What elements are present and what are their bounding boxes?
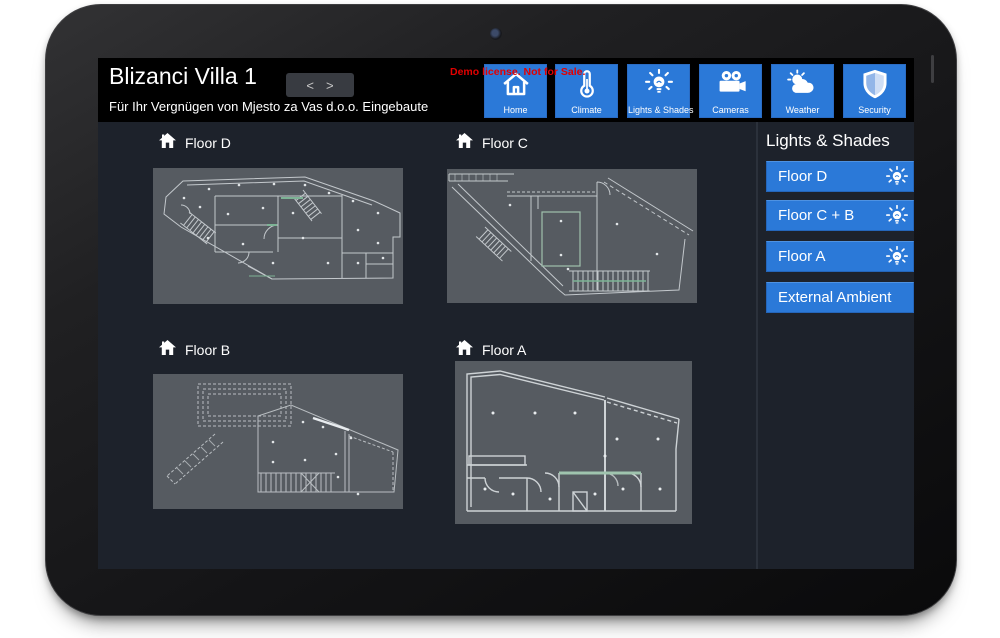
prev-arrow-icon[interactable]: < (306, 78, 314, 93)
tablet-device: Blizanci Villa 1 Für Ihr Vergnügen von M… (45, 4, 957, 616)
floors-panel: Floor D (98, 122, 914, 569)
app-header: Blizanci Villa 1 Für Ihr Vergnügen von M… (98, 58, 914, 122)
house-icon (159, 340, 176, 359)
floor-d-plan[interactable] (153, 168, 403, 304)
nav-button-label: Lights & Shades (628, 105, 689, 115)
floor-b-plan[interactable] (153, 374, 403, 509)
sidebar-title: Lights & Shades (766, 131, 890, 151)
house-icon (456, 340, 473, 359)
bulb-icon (628, 69, 689, 97)
bulb-icon (886, 246, 908, 272)
floor-b-label: Floor B (159, 340, 230, 359)
next-arrow-icon[interactable]: > (326, 78, 334, 93)
sidebar-button-label: External Ambient (778, 289, 891, 306)
sidebar-button-label: Floor A (778, 248, 826, 265)
shield-icon (844, 69, 905, 99)
app-screen: Blizanci Villa 1 Für Ihr Vergnügen von M… (98, 58, 914, 569)
video-camera-icon (700, 69, 761, 97)
page-subtitle: Für Ihr Vergnügen von Mjesto za Vas d.o.… (109, 99, 428, 114)
floor-a-label: Floor A (456, 340, 526, 359)
nav-button-label: Climate (556, 105, 617, 115)
floor-label-text: Floor D (185, 135, 231, 151)
floor-c-label: Floor C (456, 133, 528, 152)
nav-lights-shades-button[interactable]: Lights & Shades (627, 64, 690, 118)
floor-label-text: Floor C (482, 135, 528, 151)
nav-button-label: Home (485, 105, 546, 115)
sidebar-button-label: Floor D (778, 168, 827, 185)
floor-label-text: Floor A (482, 342, 526, 358)
nav-button-label: Weather (772, 105, 833, 115)
page-title: Blizanci Villa 1 (109, 63, 257, 90)
floor-a-plan[interactable] (455, 361, 692, 524)
demo-license-watermark: Demo license. Not for Sale. (450, 66, 585, 78)
sidebar-floor-d-button[interactable]: Floor D (766, 161, 914, 192)
nav-button-label: Security (844, 105, 905, 115)
nav-cameras-button[interactable]: Cameras (699, 64, 762, 118)
front-camera-icon (490, 28, 502, 40)
sidebar-divider (756, 122, 758, 569)
sidebar-button-label: Floor C + B (778, 207, 854, 224)
house-icon (159, 133, 176, 152)
page-pager-button[interactable]: < > (286, 73, 354, 97)
nav-button-label: Cameras (700, 105, 761, 115)
floor-label-text: Floor B (185, 342, 230, 358)
nav-security-button[interactable]: Security (843, 64, 906, 118)
nav-weather-button[interactable]: Weather (771, 64, 834, 118)
bulb-icon (886, 205, 908, 231)
house-icon (456, 133, 473, 152)
sidebar-floor-a-button[interactable]: Floor A (766, 241, 914, 272)
power-button (931, 55, 934, 83)
sun-cloud-icon (772, 69, 833, 97)
bulb-icon (886, 166, 908, 192)
floor-d-label: Floor D (159, 133, 231, 152)
sidebar-external-ambient-button[interactable]: External Ambient (766, 282, 914, 313)
floor-c-plan[interactable] (447, 169, 697, 303)
sidebar-floor-c-b-button[interactable]: Floor C + B (766, 200, 914, 231)
